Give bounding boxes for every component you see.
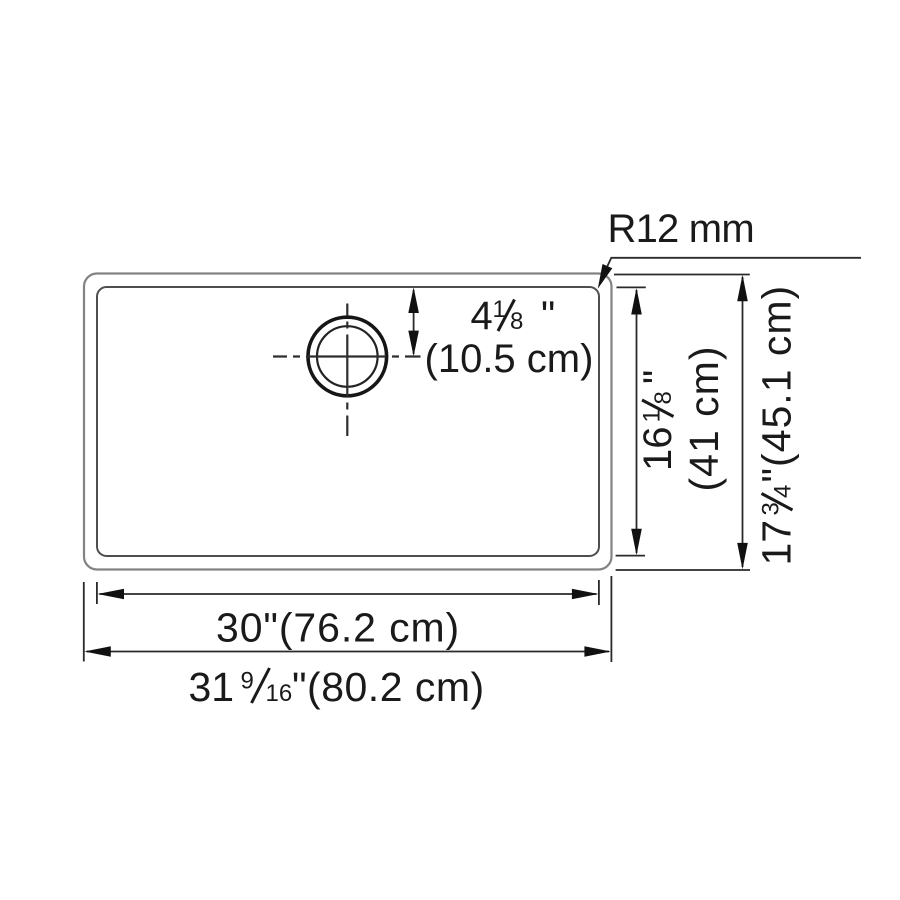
svg-text:": " — [636, 370, 680, 384]
svg-text:": " — [541, 294, 555, 338]
svg-text:9: 9 — [241, 668, 254, 695]
svg-text:31: 31 — [189, 664, 235, 710]
svg-text:"(45.1 cm): "(45.1 cm) — [754, 285, 800, 483]
svg-text:17: 17 — [754, 520, 800, 566]
svg-text:(41 cm): (41 cm) — [681, 346, 727, 492]
svg-text:R12 mm: R12 mm — [608, 207, 754, 251]
svg-text:16: 16 — [636, 427, 680, 472]
svg-text:30"(76.2 cm): 30"(76.2 cm) — [216, 605, 460, 651]
svg-text:4: 4 — [471, 294, 493, 338]
svg-text:8: 8 — [650, 391, 677, 404]
svg-text:4: 4 — [770, 485, 797, 498]
svg-text:(10.5 cm): (10.5 cm) — [425, 337, 594, 381]
svg-text:"(80.2 cm): "(80.2 cm) — [292, 664, 485, 710]
svg-text:16: 16 — [266, 680, 293, 707]
svg-text:8: 8 — [510, 308, 523, 335]
